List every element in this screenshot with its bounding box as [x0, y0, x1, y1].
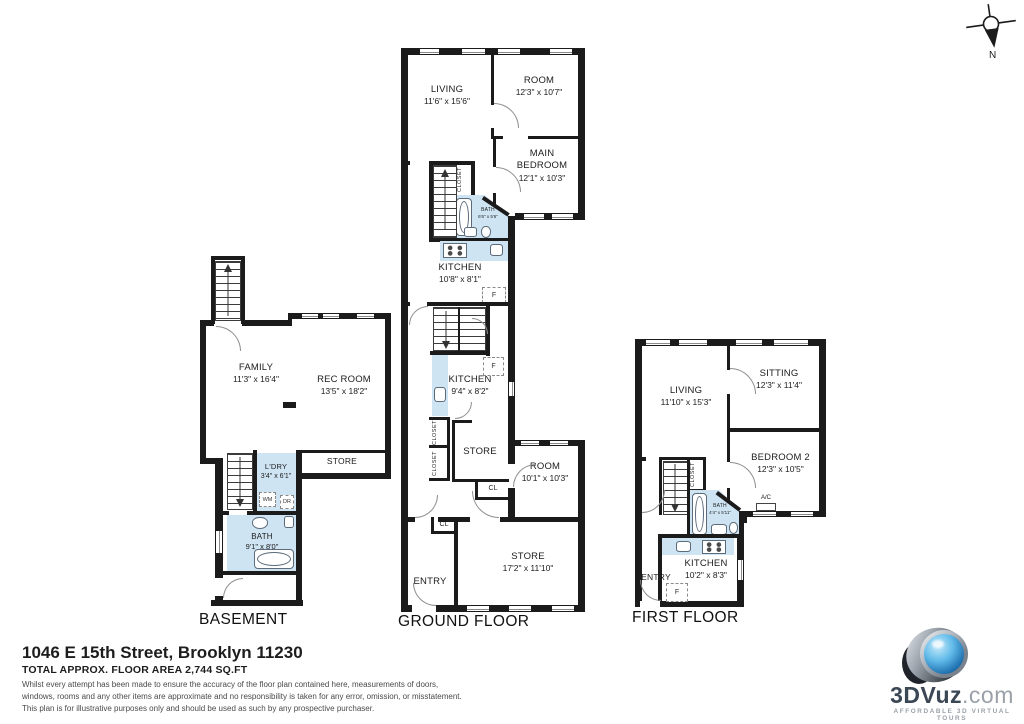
window — [678, 339, 708, 346]
floor-title-first: FIRST FLOOR — [632, 609, 739, 627]
door-arc — [413, 583, 436, 606]
closet-label: CLOSET — [432, 419, 446, 445]
window — [773, 339, 809, 346]
wall — [242, 320, 292, 326]
stairs-direction-arrow — [439, 167, 451, 235]
room-label-room-top: ROOM 12'3" x 10'7" — [497, 75, 581, 98]
window — [215, 530, 223, 554]
wall — [635, 457, 646, 461]
closet-label: CLOSET — [432, 449, 446, 478]
room-label-store-mid: STORE — [452, 446, 508, 458]
wall — [452, 479, 509, 482]
lens-glass — [924, 634, 964, 674]
sink — [464, 227, 477, 237]
compass-north-label: N — [989, 50, 996, 61]
room-label-laundry: L'DRY 3'4" x 6'1" — [256, 462, 296, 481]
logo-wordmark: 3DVuz.com — [880, 682, 1024, 709]
lens-highlight — [932, 640, 944, 648]
wall — [687, 490, 690, 536]
toilet — [252, 517, 268, 529]
wall — [727, 428, 826, 432]
wall — [452, 420, 472, 423]
ac-unit — [756, 503, 776, 511]
room-label-store-basement: STORE — [300, 456, 384, 467]
wall — [703, 457, 706, 492]
room-label-bath-ground: BATH 6'6" x 5'6" — [468, 207, 508, 219]
stairs-direction-arrow — [440, 309, 452, 351]
wall — [493, 139, 496, 167]
logo-brand: 3DVuz — [890, 682, 962, 708]
fridge: F — [482, 287, 506, 303]
sink — [676, 541, 691, 552]
disclaimer-line-2: windows, rooms and any other items are a… — [22, 691, 462, 703]
disclaimer-line-3: This plan is for illustrative purposes o… — [22, 703, 462, 715]
stairs-direction-arrow — [234, 455, 246, 509]
window — [466, 605, 490, 612]
fridge: F — [666, 583, 688, 602]
stove — [443, 243, 467, 258]
door-opening — [640, 601, 660, 607]
wall — [241, 256, 245, 324]
window — [461, 48, 486, 55]
stove — [702, 540, 726, 554]
wall — [401, 161, 410, 165]
wall — [528, 136, 585, 139]
door-opening — [215, 578, 223, 596]
wall — [401, 517, 415, 522]
door-arc — [216, 326, 241, 351]
room-label-bath-first: BATH 4'4" x 5'11" — [702, 503, 738, 515]
wall — [447, 417, 450, 481]
window — [301, 313, 319, 319]
logo-tagline: AFFORDABLE 3D VIRTUAL TOURS — [880, 708, 1024, 722]
stairs-direction-arrow — [222, 262, 234, 320]
wall — [211, 256, 245, 260]
window — [520, 440, 540, 446]
window — [645, 339, 671, 346]
logo-suffix: .com — [962, 682, 1014, 708]
wall — [508, 488, 515, 517]
door-arc — [494, 103, 519, 128]
wall — [500, 517, 585, 522]
column — [283, 402, 296, 408]
wall — [727, 432, 730, 462]
wall — [578, 48, 585, 220]
floor-plan-page: N BATH 6'6" x 5'6" CLOSET — [0, 0, 1024, 724]
disclaimer-text: Whilst every attempt has been made to en… — [22, 679, 462, 715]
wall — [508, 397, 515, 443]
wall — [431, 531, 457, 534]
sink — [490, 244, 503, 256]
total-floor-area: TOTAL APPROX. FLOOR AREA 2,744 SQ.FT — [22, 664, 247, 676]
door-arc — [640, 580, 661, 601]
washing-machine: WM — [259, 492, 276, 507]
disclaimer-line-1: Whilst every attempt has been made to en… — [22, 679, 462, 691]
toilet — [481, 226, 491, 238]
window — [508, 605, 532, 612]
property-address: 1046 E 15th Street, Brooklyn 11230 — [22, 643, 303, 663]
wall — [491, 55, 494, 105]
wall — [211, 600, 303, 606]
window — [497, 48, 521, 55]
room-label-living-ground: LIVING 11'6" x 15'6" — [403, 84, 491, 107]
window — [419, 48, 440, 55]
wall — [429, 478, 450, 481]
room-label-family: FAMILY 11'3" x 16'4" — [208, 362, 304, 385]
door-arc — [409, 306, 428, 325]
wall — [401, 48, 408, 612]
closet-label-cl: CL — [433, 520, 455, 529]
ac-label: A/C — [753, 495, 779, 503]
window — [356, 313, 375, 319]
fridge: F — [483, 357, 504, 376]
window — [549, 48, 573, 55]
wall — [299, 450, 385, 453]
floor-title-basement: BASEMENT — [199, 611, 287, 629]
door-arc — [455, 402, 472, 419]
wall — [635, 339, 642, 607]
wall — [659, 457, 662, 515]
compass-icon: N — [960, 2, 1022, 62]
window — [322, 313, 340, 319]
room-label-store-lower: STORE 17'2" x 11'10" — [478, 551, 578, 574]
room-label-kitchen-upper: KITCHEN 10'8" x 8'1" — [414, 262, 506, 285]
room-label-bath-basement: BATH 9'1" x 8'0" — [237, 532, 287, 552]
wall — [458, 307, 460, 351]
window — [752, 511, 777, 517]
door-arc — [223, 578, 243, 598]
wall — [200, 320, 206, 464]
door-arc — [472, 491, 499, 518]
closet-label: CLOSET — [690, 460, 703, 489]
window — [735, 339, 763, 346]
window — [523, 213, 545, 220]
window — [551, 605, 575, 612]
floor-title-ground: GROUND FLOOR — [398, 613, 529, 631]
sink — [284, 516, 294, 528]
room-label-rec-room: REC ROOM 13'5" x 18'2" — [298, 374, 390, 397]
logo-3dvuz: 3DVuz.com AFFORDABLE 3D VIRTUAL TOURS — [880, 620, 1024, 720]
room-label-kitchen-lower: KITCHEN 9'4" x 8'2" — [434, 374, 506, 397]
wall — [429, 445, 450, 448]
window — [790, 511, 814, 517]
wall — [454, 522, 458, 605]
wall — [296, 450, 302, 606]
wall — [578, 440, 585, 612]
closet-label: CLOSET — [457, 163, 471, 195]
room-label-living-first: LIVING 11'10" x 15'3" — [640, 385, 732, 408]
window — [549, 440, 569, 446]
dryer: DR — [280, 495, 294, 509]
door-opening — [412, 605, 436, 612]
wall — [401, 302, 410, 306]
toilet — [729, 522, 738, 534]
wall — [288, 313, 292, 326]
door-arc — [415, 495, 438, 518]
wall — [471, 161, 475, 197]
window — [508, 381, 515, 397]
wall — [296, 473, 391, 479]
window — [551, 213, 574, 220]
wall — [427, 302, 512, 306]
stairs-direction-arrow — [669, 462, 681, 514]
wall — [727, 346, 730, 370]
wall — [223, 571, 296, 575]
